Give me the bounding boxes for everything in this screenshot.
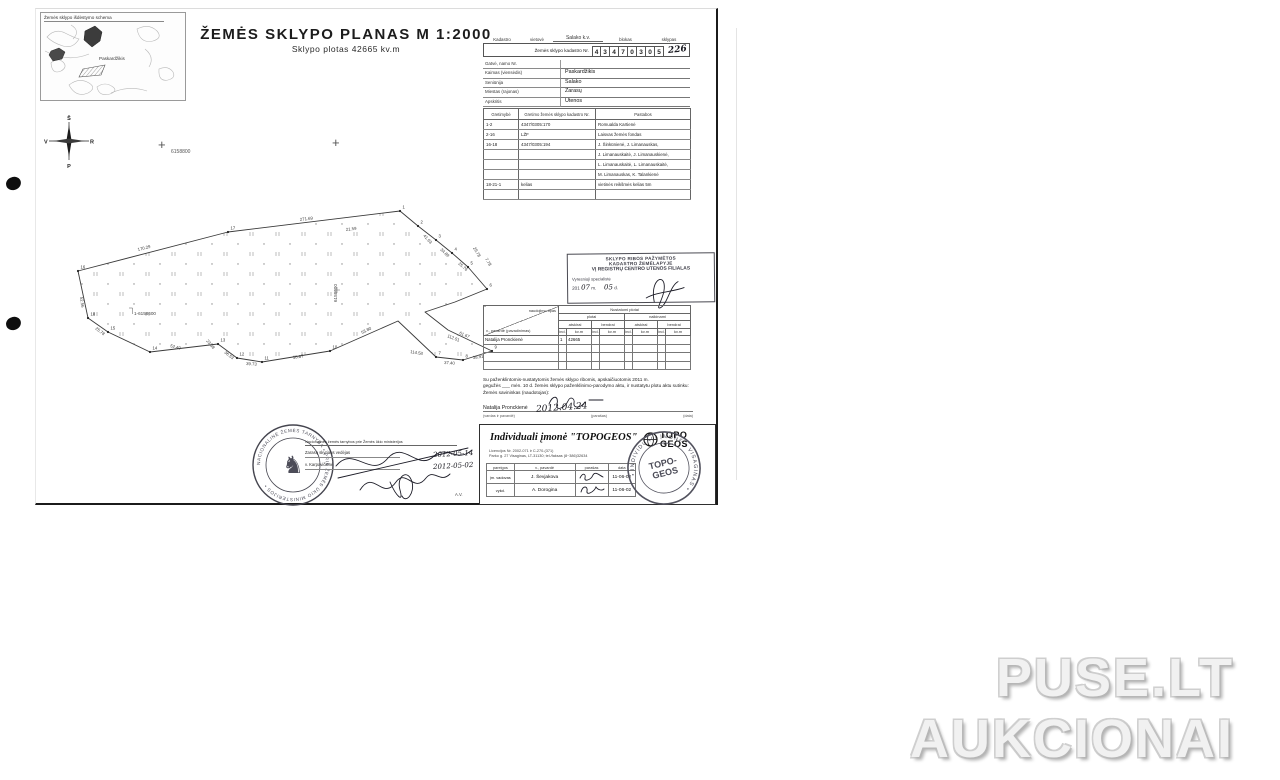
adjacency-cell: 1-2 <box>484 120 519 130</box>
compass-west-label: V <box>44 140 48 146</box>
adjacency-cell <box>519 160 596 170</box>
adjacency-row: 1-24347/0305:170Romualda Kartienė <box>484 120 691 130</box>
adjacency-row: 2-16LŽFLaisvas žemės fondas <box>484 130 691 140</box>
cadastre-header-table: Kadastro vietovė Salako k.v. blokas skly… <box>483 30 690 57</box>
registry-date-prefix: 201 <box>572 286 580 291</box>
areas-cell <box>658 336 666 345</box>
adjacency-cell: L. Limanauskaitė, L. Limanauskaitė, <box>596 160 691 170</box>
adjacency-cell <box>484 170 519 180</box>
areas-cell <box>484 361 559 370</box>
vertex-dot <box>462 359 464 361</box>
areas-cell <box>484 353 559 362</box>
registry-stamp: SKLYPO RIBOS PAŽYMĖTOS KADASTRO ŽEMĖLAPY… <box>567 252 716 304</box>
kadastro-digit: 4 <box>592 46 601 57</box>
compass-north-label: Š <box>67 114 71 122</box>
grid-northing-label: 6158800 <box>171 149 190 155</box>
areas-diagonal-header: naudojimo tipas v., pavardė (pavadinimas… <box>484 306 559 336</box>
areas-cell <box>567 344 592 353</box>
areas-cell <box>666 353 691 362</box>
location-label: Seniūnija <box>483 79 560 88</box>
areas-sub-1: atskirai <box>559 321 592 329</box>
sklypas-handwritten-number: 226 <box>668 44 688 56</box>
vertex-dot <box>467 266 469 268</box>
areas-unit: kv.m <box>567 328 592 336</box>
areas-body: Natalija Pronckienė142665 <box>484 336 691 370</box>
vertex-dot <box>451 252 453 254</box>
adjacency-cell: M. Limanauskas, K. Talankienė <box>596 170 691 180</box>
location-table: Gatvė, namo Nr.Kaimas (viensėdis)Paskard… <box>483 60 690 107</box>
areas-cell <box>567 353 592 362</box>
adjacency-row: M. Limanauskas, K. Talankienė <box>484 170 691 180</box>
areas-unit: kv.m <box>633 328 658 336</box>
areas-cell <box>600 353 625 362</box>
kadastro-digit: 3 <box>601 46 610 57</box>
adjacency-cell: 4347/0305:170 <box>519 120 596 130</box>
adjacency-row <box>484 190 691 200</box>
owner-captions: (vardas ir pavardė) (parašas) (data) <box>483 413 693 419</box>
areas-table: naudojimo tipas v., pavardė (pavadinimas… <box>483 305 691 370</box>
surveyor-address: Parko g. 27 Visaginas, LT-31130; tel./fa… <box>489 454 587 458</box>
vertex-number: 5 <box>471 261 474 266</box>
owner-signature-row: Natalija Pronckienė 2012.04.24 <box>483 396 693 412</box>
surveyor-h-role: pareigos <box>487 464 515 471</box>
areas-cell <box>592 344 600 353</box>
inset-place-label: Paskardžikis <box>99 56 125 61</box>
vertex-dot <box>236 357 238 359</box>
areas-cell: 42665 <box>567 336 592 345</box>
adjacency-cell <box>596 190 691 200</box>
surveyor-signature-1 <box>578 471 606 481</box>
parcel-outline <box>78 211 492 362</box>
vertex-number: 11 <box>265 356 270 361</box>
areas-group-title: Nustatomi plotai <box>559 306 691 314</box>
surveyor-name: J. Ševjakova <box>514 471 575 484</box>
vertex-number: 3 <box>439 234 442 239</box>
watermark: PUSE.LT AUKCIONAI <box>910 648 1234 770</box>
adjacency-cell: Romualda Kartienė <box>596 120 691 130</box>
areas-sub-3: atskirai <box>625 321 658 329</box>
location-row: SeniūnijaSalako <box>483 79 690 88</box>
adjacency-cell: vietinės reikšmės kelias 5m <box>596 180 691 190</box>
punch-hole-bottom <box>5 315 23 331</box>
adjacency-cell: J. Limanauskaitė, J. Limanauskienė, <box>596 150 691 160</box>
adjacency-cell: LŽF <box>519 130 596 140</box>
grid-bracket-label: 1-6158600 <box>134 311 156 316</box>
adjacency-cell: Laisvas žemės fondas <box>596 130 691 140</box>
areas-cell <box>592 361 600 370</box>
location-label: Gatvė, namo Nr. <box>483 60 560 69</box>
inset-map-title: Žemės sklypo išdėstymo schema <box>44 15 164 22</box>
areas-cell <box>658 344 666 353</box>
inset-lake-blob <box>49 48 65 61</box>
adjacency-cell <box>519 150 596 160</box>
vertex-number: 18 <box>91 312 96 317</box>
inset-parcel-mark <box>79 65 105 77</box>
areas-cell <box>625 353 633 362</box>
adjacency-row: L. Limanauskaitė, L. Limanauskaitė, <box>484 160 691 170</box>
areas-cell <box>658 361 666 370</box>
edge-length-label: 114.58 <box>410 349 424 356</box>
edge-length-label: 37.40 <box>444 360 456 366</box>
areas-sub-4: bendrai <box>658 321 691 329</box>
owner-date-handwritten: 2012.04.24 <box>536 403 588 413</box>
adjacency-header-row: Gretimybė Gretimo žemės sklypo kadastro … <box>484 109 691 120</box>
vytis-emblem-icon: ♞ <box>282 452 304 479</box>
vertex-number: 1 <box>403 205 406 210</box>
vertex-number: 12 <box>240 352 245 357</box>
areas-cell <box>600 344 625 353</box>
compass-rose: Š P V R <box>42 112 96 170</box>
agreement-line2: gegužės ___ mėn. 10 d. žemės sklypo paže… <box>483 383 693 389</box>
areas-cell <box>559 353 567 362</box>
scanned-land-plan-page: ŽEMĖS SKLYPO PLANAS M 1:2000 Sklypo plot… <box>0 0 1280 780</box>
vertex-number: 16 <box>81 265 86 270</box>
edge-length-label: 170.29 <box>137 244 152 252</box>
adjacency-cell: 18-21-1 <box>484 180 519 190</box>
areas-header-row1: naudojimo tipas v., pavardė (pavadinimas… <box>484 306 691 314</box>
inset-location-map: Paskardžikis Žemės sklypo išdėstymo sche… <box>40 12 186 101</box>
vertex-number: 10 <box>333 345 338 350</box>
vertex-dot <box>217 343 219 345</box>
kadastro-label: Kadastro <box>483 37 521 42</box>
adjacency-cell <box>519 170 596 180</box>
areas-cell <box>625 361 633 370</box>
areas-cell <box>592 336 600 345</box>
vertex-dot <box>77 270 79 272</box>
areas-cell <box>600 361 625 370</box>
vietove-label: vietovė <box>521 37 553 42</box>
areas-diag-top: naudojimo tipas <box>529 308 556 313</box>
vertex-dot <box>227 231 229 233</box>
adjacency-cell: 16-18 <box>484 140 519 150</box>
kadastro-digit: 3 <box>637 46 646 57</box>
surveyor-role: vykd. <box>487 484 515 497</box>
areas-row: Natalija Pronckienė142665 <box>484 336 691 345</box>
kadastro-digit: 0 <box>628 46 637 57</box>
adjacency-cell: kelias <box>519 180 596 190</box>
kadastro-digit: 7 <box>619 46 628 57</box>
vertex-dot <box>399 210 401 212</box>
areas-cell <box>666 361 691 370</box>
surveyor-role: įm. vadovas <box>487 471 515 484</box>
page-subtitle: Sklypo plotas 42665 kv.m <box>196 44 496 54</box>
edge-length-label: 52.56 <box>79 297 85 309</box>
adjacency-cell: J. Šinkūnienė, J. Limanauskas, <box>596 140 691 150</box>
areas-cell <box>666 344 691 353</box>
caption-signature: (parašas) <box>591 413 607 419</box>
areas-cell <box>600 336 625 345</box>
location-row: Miestas (rajonas)Zarasų <box>483 88 690 97</box>
kadastro-digit: 5 <box>655 46 664 57</box>
inset-village-blob <box>84 26 102 47</box>
vertex-dot <box>261 361 263 363</box>
registry-date-d-label: d. <box>614 285 618 290</box>
watermark-line1: PUSE.LT <box>910 648 1234 709</box>
areas-row <box>484 361 691 370</box>
punch-hole-top <box>5 175 23 191</box>
adjacency-header-gretimybe: Gretimybė <box>484 109 519 120</box>
inset-map-graphic: Paskardžikis <box>41 13 187 102</box>
vertex-number: 6 <box>490 283 493 288</box>
cadastre-number-row: Žemės sklypo kadastro Nr. 43470305 226 <box>483 43 690 57</box>
adjacency-cell <box>484 190 519 200</box>
location-label: Apskritis <box>483 98 560 107</box>
areas-unit: ind. <box>625 328 633 336</box>
areas-unit: kv.m <box>600 328 625 336</box>
location-label: Miestas (rajonas) <box>483 88 560 97</box>
areas-unit: ind. <box>592 328 600 336</box>
areas-row <box>484 353 691 362</box>
adjacency-table: Gretimybė Gretimo žemės sklypo kadastro … <box>483 108 691 200</box>
compass-south-label: P <box>67 164 71 170</box>
areas-sub-2: bendrai <box>592 321 625 329</box>
adjacency-body: 1-24347/0305:170Romualda Kartienė2-16LŽF… <box>484 120 691 200</box>
areas-cell <box>625 336 633 345</box>
vertex-number: 17 <box>231 226 236 231</box>
vertex-dot <box>417 225 419 227</box>
location-value <box>560 60 690 69</box>
surveyor-signature-2 <box>578 484 606 494</box>
areas-cell <box>559 344 567 353</box>
vertex-number: 13 <box>221 338 226 343</box>
areas-cell <box>633 344 658 353</box>
areas-group-left: plotai <box>559 313 625 321</box>
areas-unit: ind. <box>559 328 567 336</box>
vertex-number: 4 <box>455 247 458 252</box>
areas-cell <box>592 353 600 362</box>
areas-cell <box>633 353 658 362</box>
vertex-dot <box>435 356 437 358</box>
location-value: Zarasų <box>560 88 690 97</box>
areas-diag-bottom: v., pavardė (pavadinimas) <box>486 328 530 333</box>
surveyor-license: Licencijos Nr. 2002-071 ir C-270-(371) <box>489 449 553 453</box>
vertex-dot <box>329 350 331 352</box>
kadastro-digit: 0 <box>646 46 655 57</box>
vertex-dot <box>107 331 109 333</box>
areas-cell <box>666 336 691 345</box>
topogeos-round-stamp: • INDIVIDUALI ĮMONĖ • VISAGINAS • TOPO- … <box>612 428 712 508</box>
caption-name: (vardas ir pavardė) <box>483 413 515 419</box>
adjacency-row: 16-184347/0305:194J. Šinkūnienė, J. Lima… <box>484 140 691 150</box>
vertex-dot <box>149 351 151 353</box>
areas-cell <box>625 344 633 353</box>
location-row: Gatvė, namo Nr. <box>483 60 690 69</box>
areas-unit: ind. <box>658 328 666 336</box>
areas-unit: kv.m <box>666 328 691 336</box>
vertex-number: 15 <box>111 326 116 331</box>
location-label: Kaimas (viensėdis) <box>483 69 560 78</box>
location-value: Paskardžikis <box>560 69 690 78</box>
areas-cell <box>633 336 658 345</box>
areas-group-right: naikinami <box>625 313 691 321</box>
grid-cross-1: + <box>158 140 166 150</box>
areas-cell <box>484 344 559 353</box>
registry-date-m-label: m. <box>591 285 596 290</box>
adjacency-row: J. Limanauskaitė, J. Limanauskienė, <box>484 150 691 160</box>
areas-row <box>484 344 691 353</box>
adjacency-header-pastabos: Pastabos <box>596 109 691 120</box>
registry-date-month-handwritten: 07 <box>581 284 590 292</box>
registry-date-day-handwritten: 05 <box>604 283 613 291</box>
edge-length-label: 58.67 <box>292 353 304 360</box>
location-value: Salako <box>560 79 690 88</box>
parcel-svg: 1-6158600 6158600 170.29271.6921.5941.63… <box>55 185 505 380</box>
location-row: ApskritisUtenos <box>483 98 690 107</box>
watermark-line2: AUKCIONAI <box>910 709 1234 770</box>
edge-length-label: 39.73 <box>246 361 258 367</box>
adjacency-cell <box>519 190 596 200</box>
edge-length-label: 271.69 <box>300 215 314 222</box>
edge-length-label: 29.78 <box>472 246 482 258</box>
areas-cell <box>658 353 666 362</box>
adjacency-cell <box>484 150 519 160</box>
areas-cell <box>633 361 658 370</box>
approval-signatures <box>330 438 480 508</box>
location-row: Kaimas (viensėdis)Paskardžikis <box>483 69 690 78</box>
grid-cross-2: + <box>332 138 340 148</box>
areas-cell: 1 <box>559 336 567 345</box>
vertex-dot <box>486 288 488 290</box>
scan-edge-line <box>736 28 737 480</box>
areas-cell: Natalija Pronckienė <box>484 336 559 345</box>
kadastro-digit-cells: 43470305 <box>592 41 664 59</box>
location-value: Utenos <box>560 98 690 107</box>
vertex-dot <box>435 239 437 241</box>
kadastro-nr-label: Žemės sklypo kadastro Nr. <box>486 48 592 53</box>
page-title: ŽEMĖS SKLYPO PLANAS M 1:2000 <box>196 26 496 43</box>
surveyor-name: A. Dorogina <box>514 484 575 497</box>
areas-cell <box>567 361 592 370</box>
adjacency-cell: 2-16 <box>484 130 519 140</box>
surveyor-h-sig: parašas <box>575 464 608 471</box>
adjacency-header-kadastro: Gretimo žemės sklypo kadastro Nr. <box>519 109 596 120</box>
caption-date: (data) <box>683 413 693 419</box>
agreement-block: Su paženklintomis-nustatytomis žemės skl… <box>483 377 693 420</box>
kadastro-digit: 4 <box>610 46 619 57</box>
edge-length-label: 7.78 <box>484 257 493 267</box>
owner-name: Natalija Pronckienė <box>483 405 528 411</box>
adjacency-row: 18-21-1keliasvietinės reikšmės kelias 5m <box>484 180 691 190</box>
adjacency-cell: 4347/0305:194 <box>519 140 596 150</box>
compass-east-label: R <box>90 140 94 146</box>
adjacency-cell <box>484 160 519 170</box>
vertex-dot <box>87 317 89 319</box>
areas-cell <box>559 361 567 370</box>
vertex-number: 2 <box>421 220 424 225</box>
vertex-number: 14 <box>153 346 158 351</box>
surveyor-h-name: v., pavardė <box>514 464 575 471</box>
